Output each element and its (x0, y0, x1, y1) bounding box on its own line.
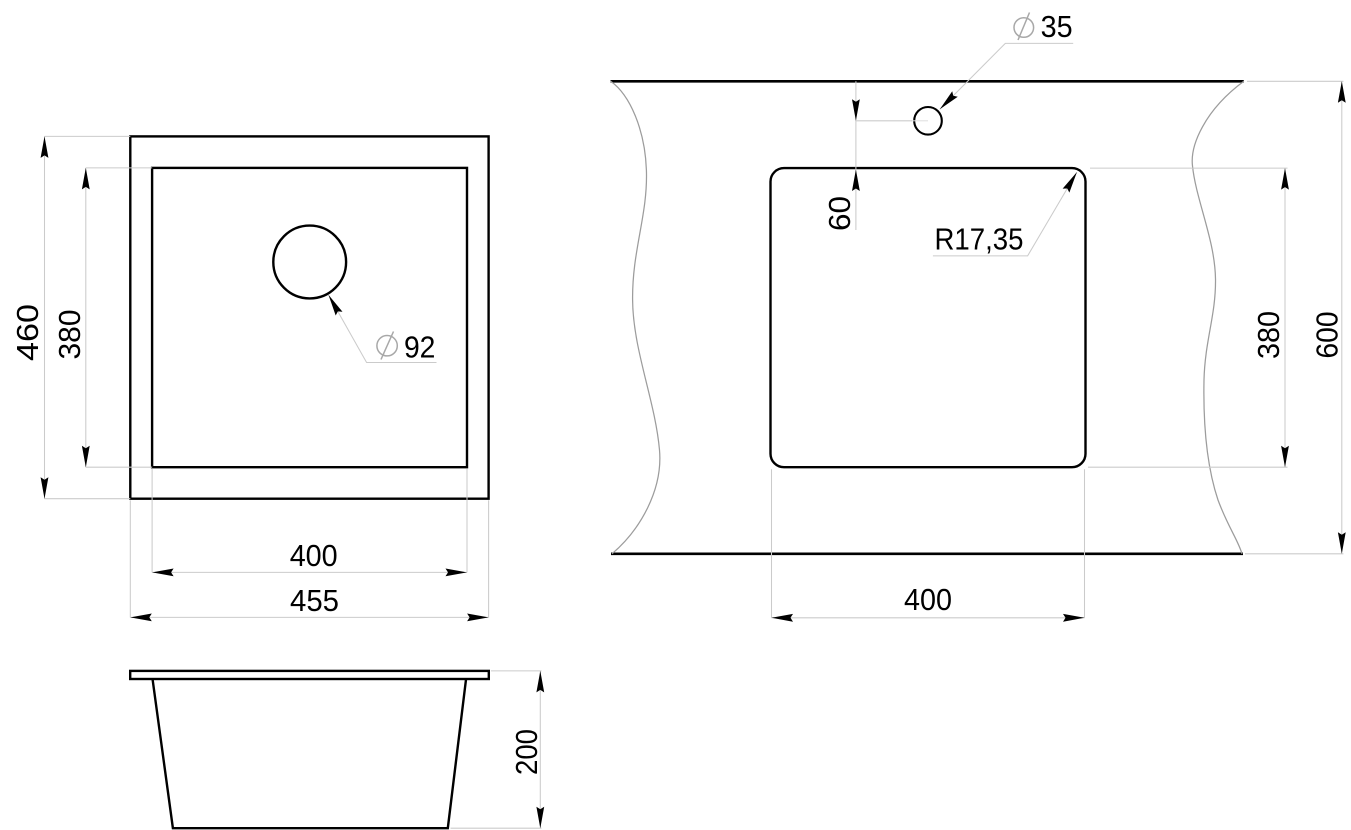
svg-text:400: 400 (904, 582, 952, 617)
svg-text:35: 35 (1041, 9, 1073, 44)
svg-text:600: 600 (1310, 312, 1345, 359)
svg-text:460: 460 (10, 304, 45, 361)
svg-text:92: 92 (404, 330, 436, 365)
svg-text:380: 380 (52, 310, 87, 360)
svg-text:400: 400 (290, 538, 338, 573)
svg-text:60: 60 (822, 196, 857, 231)
svg-text:380: 380 (1251, 311, 1286, 359)
svg-text:200: 200 (509, 729, 544, 775)
svg-text:455: 455 (290, 583, 339, 618)
svg-text:R17,35: R17,35 (935, 222, 1024, 257)
